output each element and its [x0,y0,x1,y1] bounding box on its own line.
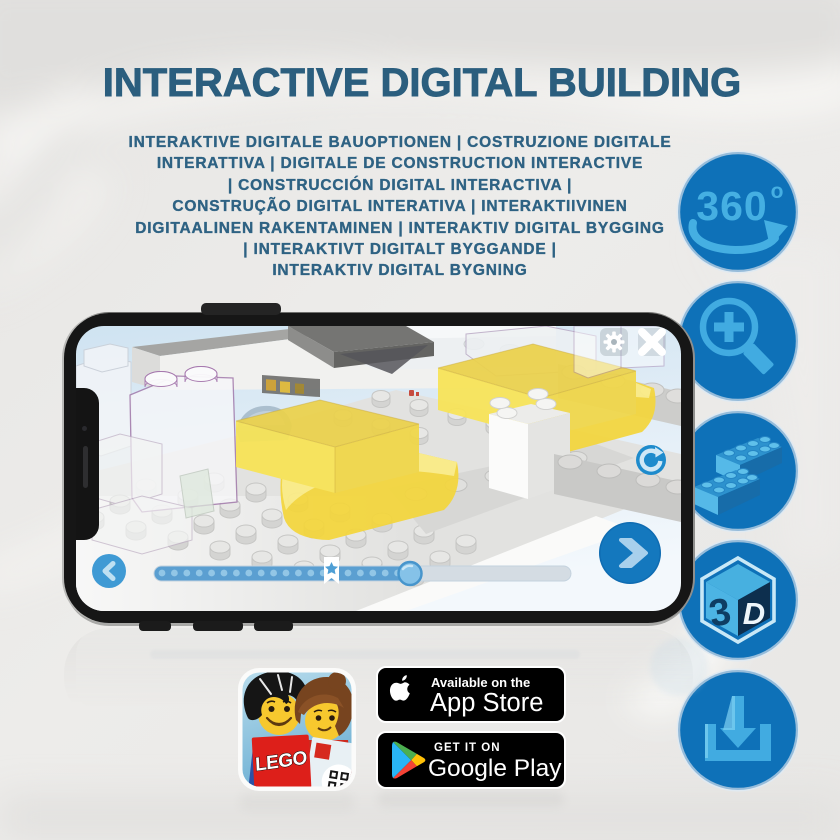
svg-text:GET IT ON: GET IT ON [434,742,501,754]
svg-text:App Store: App Store [430,689,543,717]
svg-text:o: o [771,180,784,203]
svg-text:Google Play: Google Play [428,755,562,782]
svg-text:Available on the: Available on the [431,675,530,690]
svg-text:D: D [743,596,765,631]
svg-text:360: 360 [696,183,767,229]
